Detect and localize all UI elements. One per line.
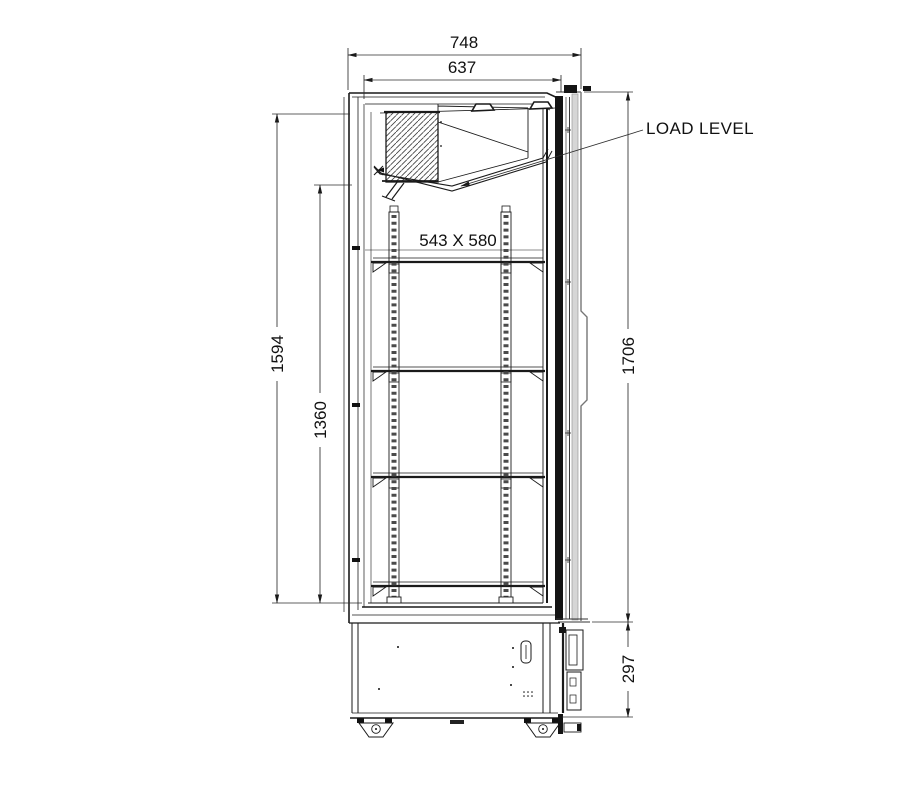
shelf-rail-rear [387,206,401,603]
extension-line [364,75,561,99]
shelf-bracket-left [373,587,386,596]
door-bottom-edge [556,619,590,622]
panel-fastener-dots [378,646,514,690]
dim-text-overall-height: 1706 [619,337,638,375]
shelf-bracket-right [530,587,543,596]
shelf-bracket-right [530,478,543,487]
shelf-3 [371,473,545,488]
door-inner-liner [555,96,563,620]
dimension-body-depth [364,75,561,99]
shelf-2 [371,367,545,382]
wall-section-ticks [352,246,360,562]
serial-label [450,720,464,724]
door-top-hinge-cap [564,85,577,93]
base-front-panel [543,623,550,713]
shelf-bracket-left [373,478,386,487]
lower-hinge-assembly [559,623,583,713]
door-top-pin [583,86,591,91]
tray-support-strut [382,181,404,201]
evaporator-coil-hatched [386,112,438,182]
caster-front [524,718,560,737]
shelf-bracket-left [373,263,386,272]
shelf-bracket-left [373,372,386,381]
machine-compartment [350,623,583,724]
housing-fastener-dot [440,145,442,147]
base-left-wall [352,623,358,713]
ceiling-bracket-2 [530,102,552,109]
housing-right-panel [438,104,528,182]
dim-text-body-depth: 637 [448,58,476,77]
shelf-1 [371,258,545,273]
door [555,85,591,622]
door-gasket-band [572,94,578,620]
housing-fastener-dot [440,121,442,123]
dim-text-base-height: 297 [619,655,638,683]
evaporator-unit [374,102,556,201]
ceiling-bracket-1 [472,104,494,111]
drain-hole-dots [523,691,533,697]
shelf-size-label: 543 X 580 [419,231,497,250]
technical-drawing-page: 748 637 1594 1360 1706 297 543 X 580 LOA… [0,0,922,804]
shelf-bracket-right [530,263,543,272]
shelving [365,206,545,603]
load-level-label: LOAD LEVEL [646,119,754,138]
shelf-4 [371,582,545,596]
dim-text-overall-depth: 748 [450,33,478,52]
shelf-rail-front [499,206,513,603]
dim-text-clear-height: 1360 [311,401,330,439]
dim-text-interior-height: 1594 [268,335,287,373]
top-outer-line [349,93,562,100]
cabinet-side-elevation: 748 637 1594 1360 1706 297 543 X 580 LOA… [0,0,922,804]
door-outer-face-with-handle [581,92,587,621]
shelf-bracket-right [530,372,543,381]
caster-rear [357,718,393,737]
